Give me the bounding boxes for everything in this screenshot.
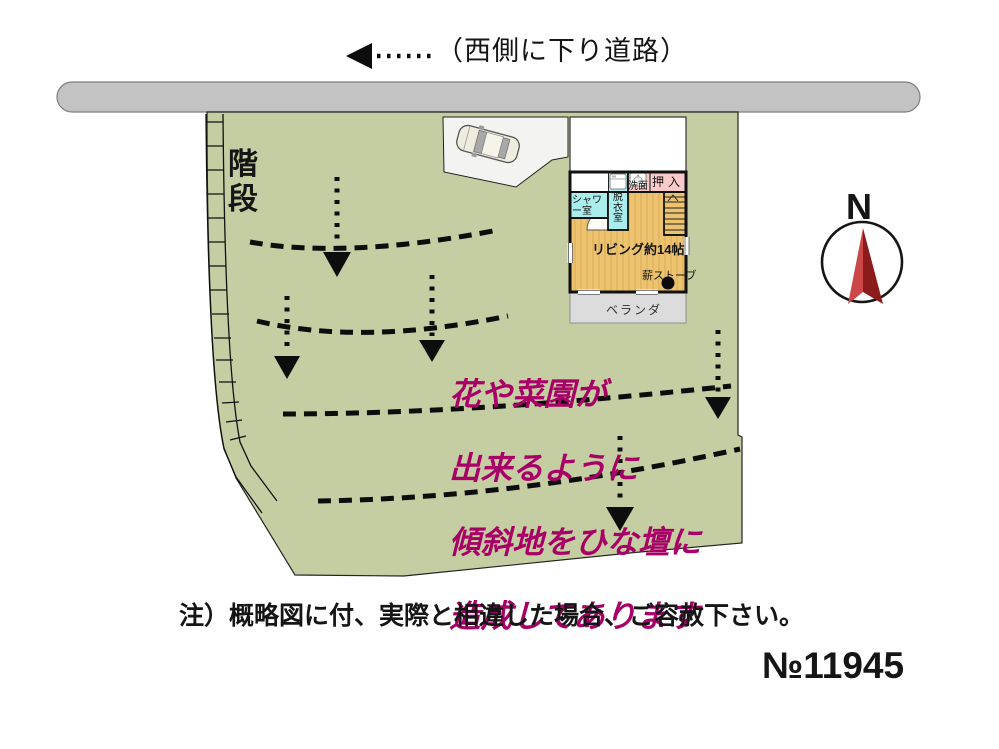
compass xyxy=(822,222,902,304)
outdoor-stairs-label: 階 段 xyxy=(228,147,258,217)
annotation-line-1: 花や菜園が xyxy=(449,376,701,413)
shower-room-label: シャワ ー室 xyxy=(572,195,602,217)
dressing-room-label: 脱 衣 室 xyxy=(611,193,625,225)
west-arrow xyxy=(346,43,436,69)
left-arrow-icon xyxy=(346,43,372,69)
wood-stove-label: 薪ストーブ xyxy=(642,270,696,283)
annotation-line-2: 出来るように xyxy=(449,450,701,487)
internal-stairs xyxy=(664,192,686,235)
veranda-label: ベランダ xyxy=(606,304,662,318)
compass-needle-dark xyxy=(863,228,883,304)
house-upper-block xyxy=(570,117,686,172)
house-floorplan xyxy=(568,117,690,323)
living-room-label: リビング約14帖 xyxy=(592,243,684,258)
disclaimer-note: 注）概略図に付、実際と相違した場合、ご容赦下さい。 xyxy=(179,603,804,632)
compass-north-label: N xyxy=(846,186,872,227)
plan-number: №11945 xyxy=(762,645,904,688)
annotation-line-3: 傾斜地をひな壇に xyxy=(449,524,701,561)
closet-label: 押入 xyxy=(652,176,684,190)
washbasin-label: 洗面 xyxy=(628,181,648,193)
road-direction-label: （西側に下り道路） xyxy=(436,36,688,67)
site-plan-canvas: （西側に下り道路） 階 段 シャワ ー室 脱 衣 室 洗面 押入 リビング約14… xyxy=(0,0,999,749)
compass-needle-light xyxy=(848,228,863,304)
washer-icon xyxy=(610,174,626,189)
hall-area xyxy=(570,172,608,192)
road-bar xyxy=(57,82,920,112)
